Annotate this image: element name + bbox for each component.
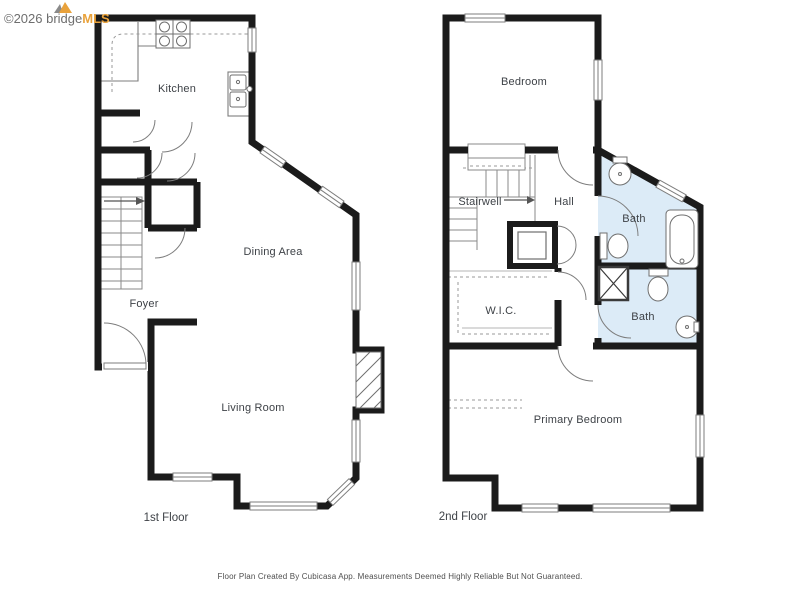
primary-dashed-line [448,400,522,408]
room-label-kitchen: Kitchen [158,83,196,95]
brand-logo: ©2026 bridgeMLS [4,12,110,26]
room-label-bath-upper: Bath [622,213,645,225]
brand-triangle-icon [52,1,74,14]
floor-label-second: 2nd Floor [439,511,488,523]
bathtub-icon [666,210,698,268]
toilet-icon [648,269,668,301]
window [260,146,286,167]
room-label-stairwell: Stairwell [458,196,501,208]
room-label-living: Living Room [221,402,284,414]
room-label-wic: W.I.C. [485,305,516,317]
room-label-hall: Hall [554,196,574,208]
window [173,473,212,481]
window [522,504,558,512]
room-label-foyer: Foyer [129,298,158,310]
front-door [102,323,148,371]
window [352,420,360,462]
window [327,479,354,506]
window [318,186,344,207]
disclaimer-text: Floor Plan Created By Cubicasa App. Meas… [0,572,800,581]
window [250,502,317,510]
room-label-primary: Primary Bedroom [534,414,623,426]
room-label-bath-lower: Bath [631,311,654,323]
toilet-icon [600,233,628,259]
window [248,28,256,52]
second-floor-walls [446,18,700,508]
floor-plan-page: Kitchen Dining Area Foyer Living Room 1s… [0,0,800,600]
room-label-dining: Dining Area [243,246,302,258]
fireplace-icon [356,352,381,408]
window [465,14,505,22]
second-floor-plan [446,14,704,512]
first-floor-plan [98,18,381,510]
wic-shelving [448,271,552,334]
floor-label-first: 1st Floor [144,512,189,524]
hall-closet [510,224,576,266]
stove-icon [156,20,190,48]
window [593,504,670,512]
room-label-bedroom: Bedroom [501,76,547,88]
window [594,60,602,100]
logo-text-orange: MLS [82,11,109,26]
bedroom-closet [468,144,525,170]
floor-plan-drawing [0,0,800,600]
window [352,262,360,310]
first-floor-windows [173,28,360,510]
shower-icon [599,267,628,300]
window [696,415,704,457]
stairs-icon [100,197,142,289]
